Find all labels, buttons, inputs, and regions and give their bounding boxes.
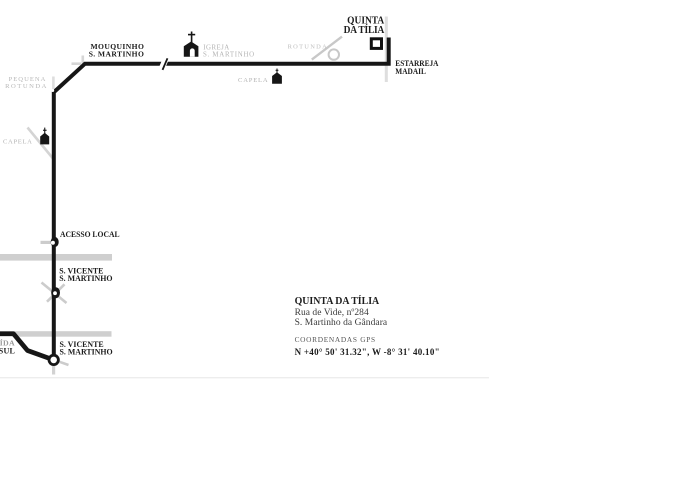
svg-text:S. MARTINHO: S. MARTINHO (60, 347, 113, 356)
svg-text:ACESSO LOCAL: ACESSO LOCAL (60, 230, 120, 239)
svg-text:S. MARTINHO: S. MARTINHO (203, 51, 255, 58)
svg-text:COORDENADAS GPS: COORDENADAS GPS (295, 335, 376, 344)
svg-text:S. MARTINHO: S. MARTINHO (89, 50, 145, 59)
svg-text:SUL: SUL (0, 347, 15, 356)
svg-text:DA TÍLIA: DA TÍLIA (344, 24, 385, 37)
svg-text:ROTUNDA: ROTUNDA (5, 83, 48, 90)
svg-text:PEQUENA: PEQUENA (9, 76, 47, 83)
svg-text:CAPELA: CAPELA (3, 139, 33, 146)
svg-text:S. MARTINHO: S. MARTINHO (59, 274, 112, 283)
svg-text:MADAIL: MADAIL (395, 67, 426, 77)
svg-text:QUINTA DA TÍLIA: QUINTA DA TÍLIA (295, 295, 380, 307)
svg-text:ROTUNDA: ROTUNDA (288, 44, 328, 51)
svg-text:Rua de Vide, nº284: Rua de Vide, nº284 (295, 308, 369, 318)
svg-text:IGREJA: IGREJA (203, 44, 229, 51)
svg-text:S. Martinho da Gândara: S. Martinho da Gândara (295, 318, 388, 328)
svg-text:N +40° 50' 31.32", W -8° 31' 4: N +40° 50' 31.32", W -8° 31' 40.10" (295, 347, 440, 357)
svg-text:CAPELA: CAPELA (238, 77, 268, 84)
